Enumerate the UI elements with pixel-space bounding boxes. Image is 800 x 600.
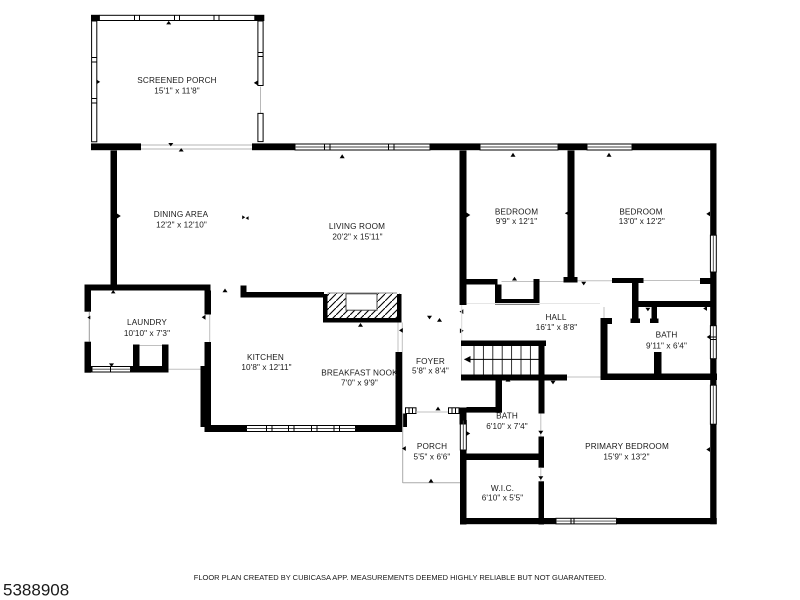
- svg-text:FLOOR PLAN CREATED BY CUBICASA: FLOOR PLAN CREATED BY CUBICASA APP. MEAS…: [194, 573, 606, 582]
- svg-text:16'1" x 8'8": 16'1" x 8'8": [536, 323, 578, 332]
- svg-text:7'0" x 9'9": 7'0" x 9'9": [341, 379, 378, 388]
- svg-text:FOYER: FOYER: [416, 357, 445, 366]
- svg-text:DINING AREA: DINING AREA: [154, 210, 209, 219]
- svg-text:13'0" x 12'2": 13'0" x 12'2": [619, 217, 665, 226]
- svg-text:PORCH: PORCH: [417, 442, 447, 451]
- svg-text:BREAKFAST NOOK: BREAKFAST NOOK: [321, 369, 398, 378]
- svg-text:6'10" x 7'4": 6'10" x 7'4": [486, 422, 528, 431]
- svg-text:10'10" x 7'3": 10'10" x 7'3": [124, 329, 170, 338]
- svg-text:LIVING ROOM: LIVING ROOM: [329, 222, 385, 231]
- svg-text:9'11" x 6'4": 9'11" x 6'4": [646, 342, 687, 351]
- svg-text:20'2" x 15'11": 20'2" x 15'11": [332, 233, 382, 242]
- svg-text:W.I.C.: W.I.C.: [491, 484, 514, 493]
- svg-text:5388908: 5388908: [3, 581, 69, 600]
- svg-text:LAUNDRY: LAUNDRY: [127, 318, 167, 327]
- svg-text:BEDROOM: BEDROOM: [619, 208, 662, 217]
- svg-text:10'8" x 12'11": 10'8" x 12'11": [241, 363, 291, 372]
- svg-text:5'8" x 8'4": 5'8" x 8'4": [412, 367, 449, 376]
- svg-text:BEDROOM: BEDROOM: [495, 208, 538, 217]
- svg-text:HALL: HALL: [545, 313, 566, 322]
- svg-text:5'5" x 6'6": 5'5" x 6'6": [414, 453, 451, 462]
- svg-text:KITCHEN: KITCHEN: [247, 353, 284, 362]
- svg-text:BATH: BATH: [656, 331, 678, 340]
- svg-text:PRIMARY BEDROOM: PRIMARY BEDROOM: [585, 442, 669, 451]
- svg-text:15'9" x 13'2": 15'9" x 13'2": [603, 453, 649, 462]
- svg-text:SCREENED PORCH: SCREENED PORCH: [137, 76, 216, 85]
- svg-text:6'10" x 5'5": 6'10" x 5'5": [482, 493, 524, 502]
- svg-text:BATH: BATH: [496, 411, 518, 420]
- svg-text:12'2" x 12'10": 12'2" x 12'10": [156, 221, 207, 230]
- svg-text:15'1" x 11'8": 15'1" x 11'8": [154, 87, 200, 96]
- svg-text:9'9" x 12'1": 9'9" x 12'1": [496, 217, 538, 226]
